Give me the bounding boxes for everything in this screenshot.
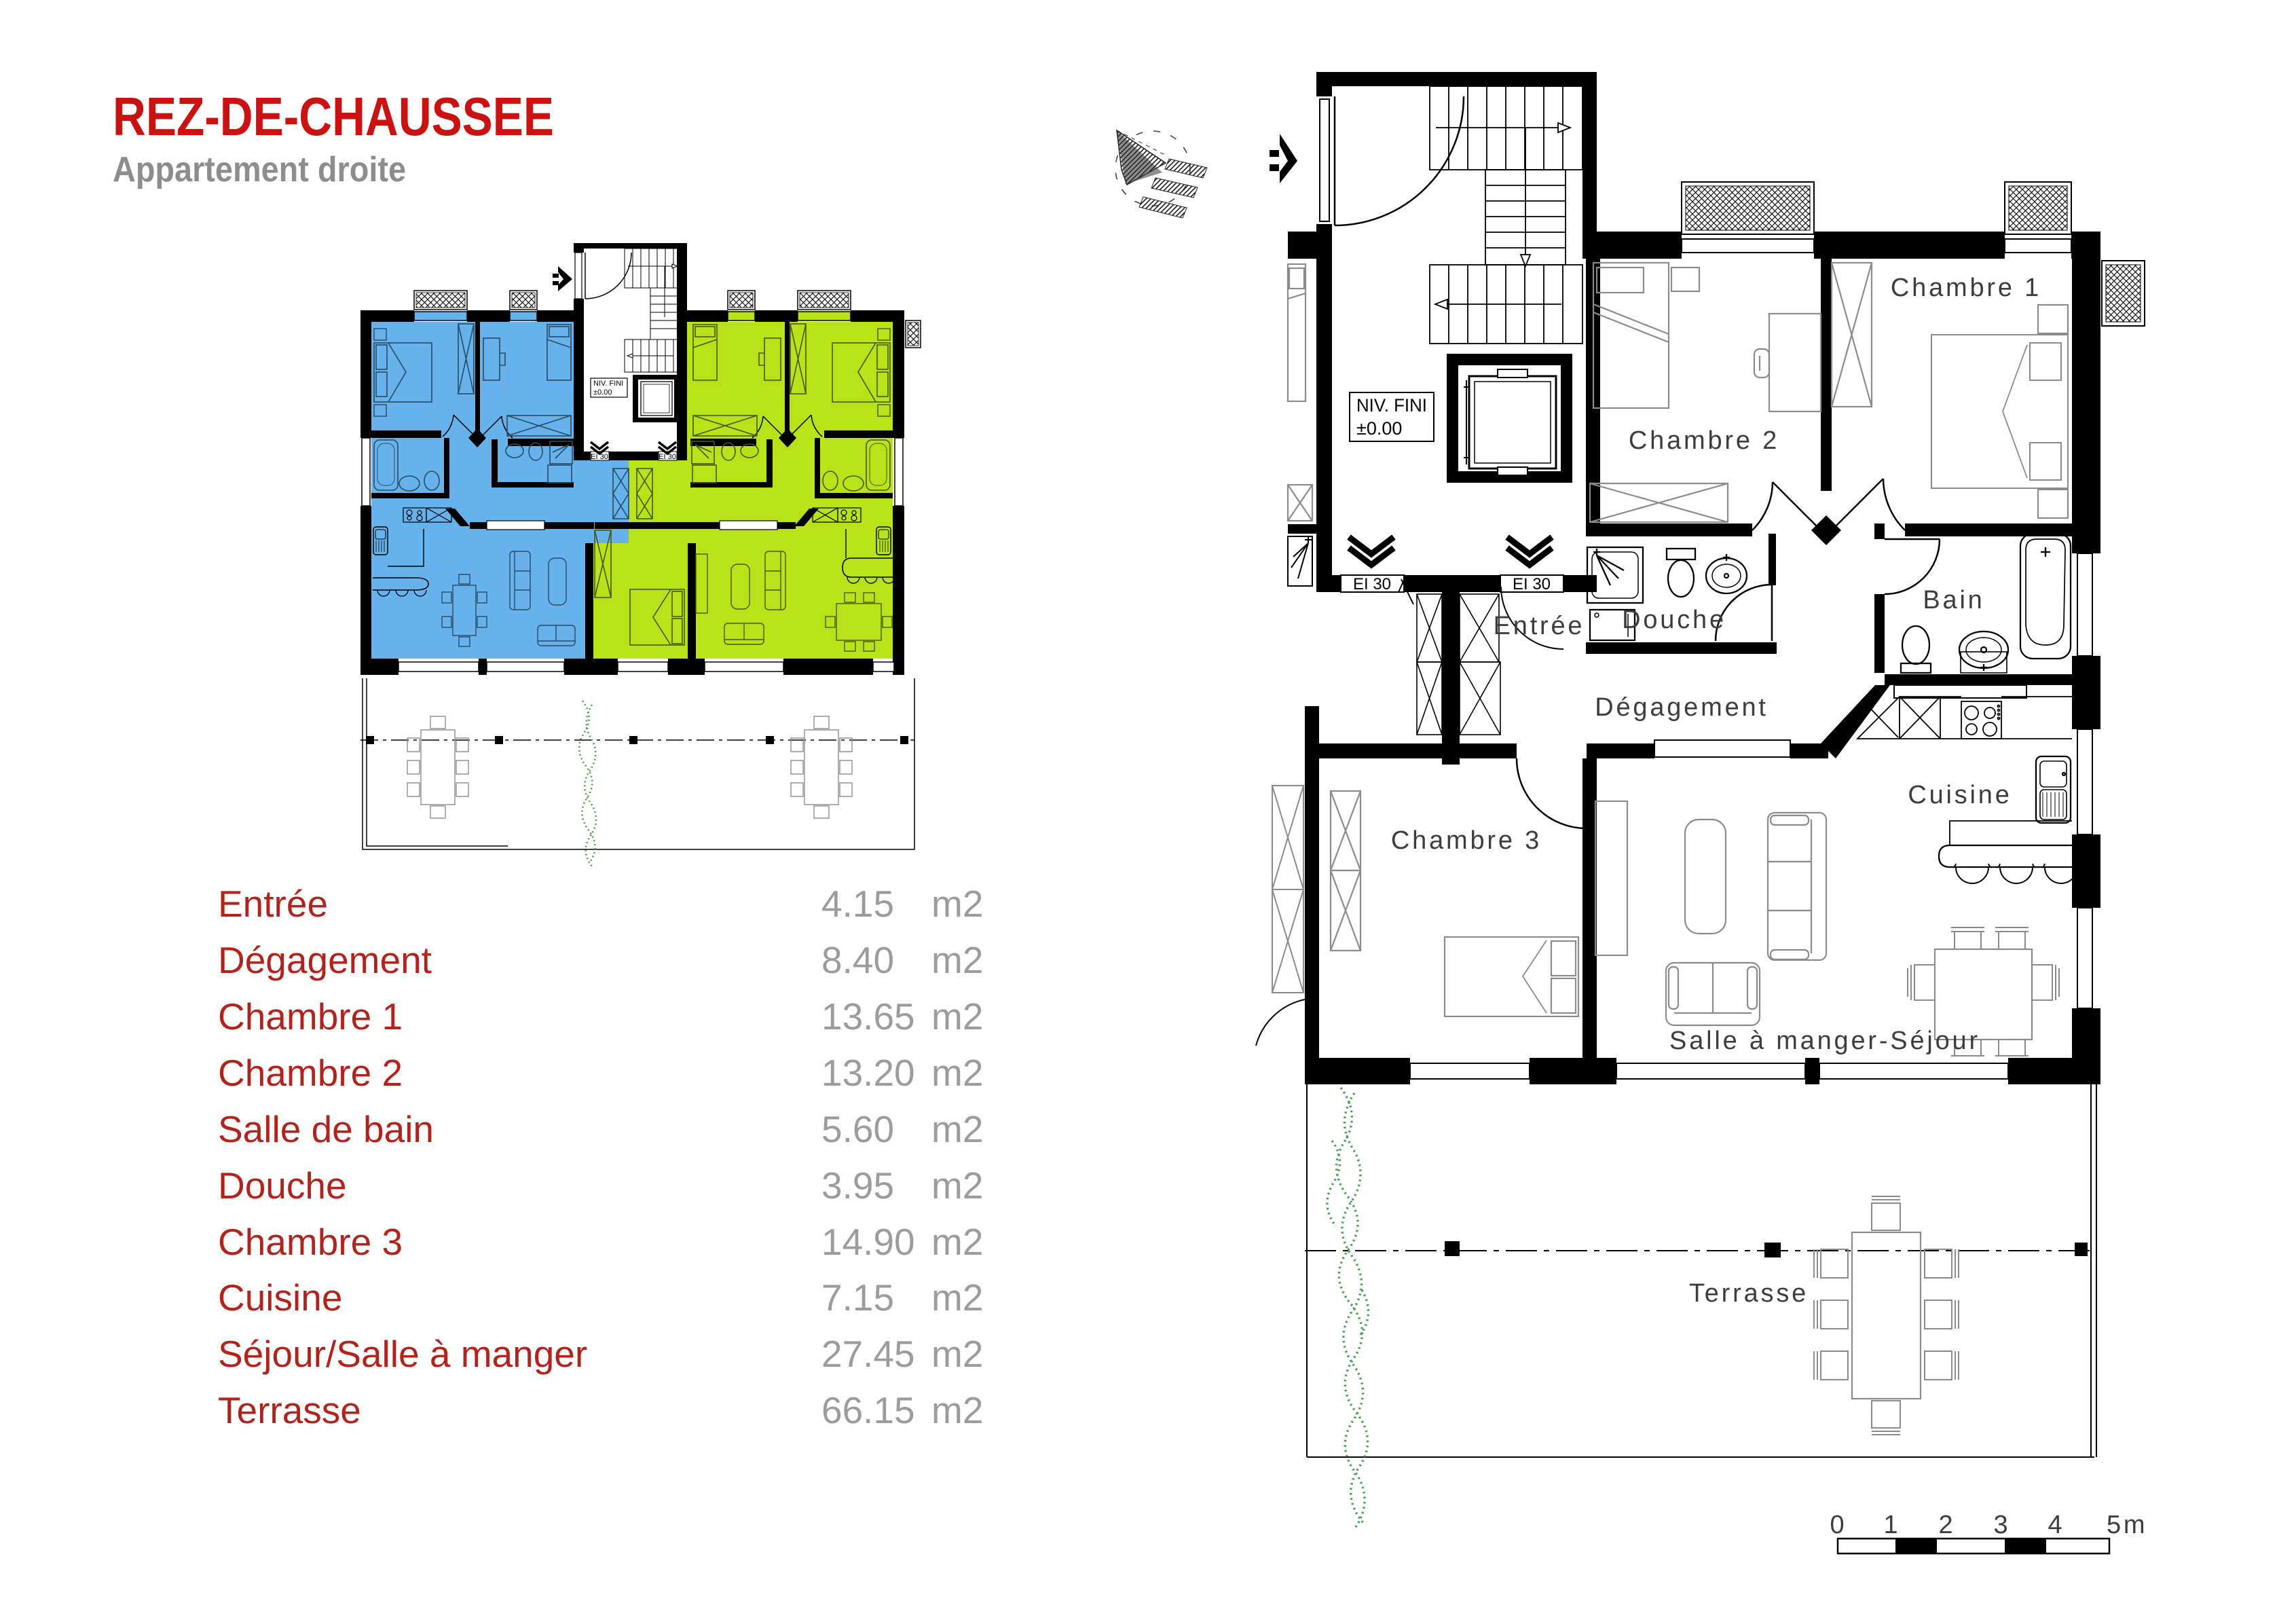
svg-text:m2: m2 [931,1164,983,1207]
svg-text:EI 30: EI 30 [1353,575,1391,593]
svg-text:EI 30: EI 30 [1513,575,1551,593]
svg-text:Chambre 3: Chambre 3 [1391,826,1542,855]
svg-text:m2: m2 [931,995,983,1037]
svg-text:14.90: 14.90 [821,1221,915,1263]
svg-text:NIV. FINI: NIV. FINI [1356,395,1427,416]
svg-text:m2: m2 [931,1108,983,1150]
svg-text:Séjour/Salle à manger: Séjour/Salle à manger [218,1333,587,1375]
svg-text:5.60: 5.60 [821,1108,894,1150]
svg-text:Cuisine: Cuisine [1908,781,2012,809]
svg-text:1: 1 [1884,1511,1901,1539]
svg-text:Entrée: Entrée [218,883,328,925]
svg-text:Appartement droite: Appartement droite [113,150,406,189]
svg-text:Terrasse: Terrasse [1689,1279,1809,1308]
svg-text:4: 4 [2048,1511,2065,1539]
svg-text:3.95: 3.95 [821,1164,894,1207]
svg-text:Entrée: Entrée [1494,612,1585,640]
svg-text:Douche: Douche [218,1164,347,1207]
svg-text:3: 3 [1994,1511,2011,1539]
svg-text:REZ-DE-CHAUSSEE: REZ-DE-CHAUSSEE [113,86,554,147]
svg-text:m2: m2 [931,1052,983,1094]
svg-text:Chambre 3: Chambre 3 [218,1221,403,1263]
svg-text:m2: m2 [931,1333,983,1375]
svg-text:66.15: 66.15 [821,1389,915,1431]
svg-text:7.15: 7.15 [821,1276,894,1319]
svg-text:Salle à manger-Séjour: Salle à manger-Séjour [1669,1027,1980,1055]
svg-text:Cuisine: Cuisine [218,1276,342,1319]
svg-text:27.45: 27.45 [821,1333,915,1375]
svg-text:m2: m2 [931,939,983,981]
svg-text:Chambre 1: Chambre 1 [1891,274,2041,302]
svg-text:±0.00: ±0.00 [1356,418,1402,439]
svg-text:Chambre 2: Chambre 2 [218,1052,403,1094]
svg-text:m2: m2 [931,1389,983,1431]
svg-text:13.65: 13.65 [821,995,915,1037]
svg-text:13.20: 13.20 [821,1052,915,1094]
svg-text:NIV. FINI: NIV. FINI [593,380,623,388]
svg-text:Chambre 2: Chambre 2 [1629,426,1779,455]
svg-text:8.40: 8.40 [821,939,894,981]
svg-text:4.15: 4.15 [821,883,894,925]
svg-text:2: 2 [1939,1511,1956,1539]
svg-text:Dégagement: Dégagement [218,939,432,981]
svg-text:m2: m2 [931,1276,983,1319]
svg-text:Salle de bain: Salle de bain [218,1108,434,1150]
svg-text:5m: 5m [2107,1511,2147,1539]
svg-text:Douche: Douche [1622,606,1726,634]
svg-text:0: 0 [1830,1511,1847,1539]
svg-text:Bain: Bain [1923,586,1984,614]
svg-text:m2: m2 [931,883,983,925]
svg-text:±0.00: ±0.00 [593,388,612,397]
svg-text:Terrasse: Terrasse [218,1389,361,1431]
svg-text:m2: m2 [931,1221,983,1263]
svg-text:Dégagement: Dégagement [1595,693,1769,722]
svg-text:Chambre 1: Chambre 1 [218,995,403,1037]
